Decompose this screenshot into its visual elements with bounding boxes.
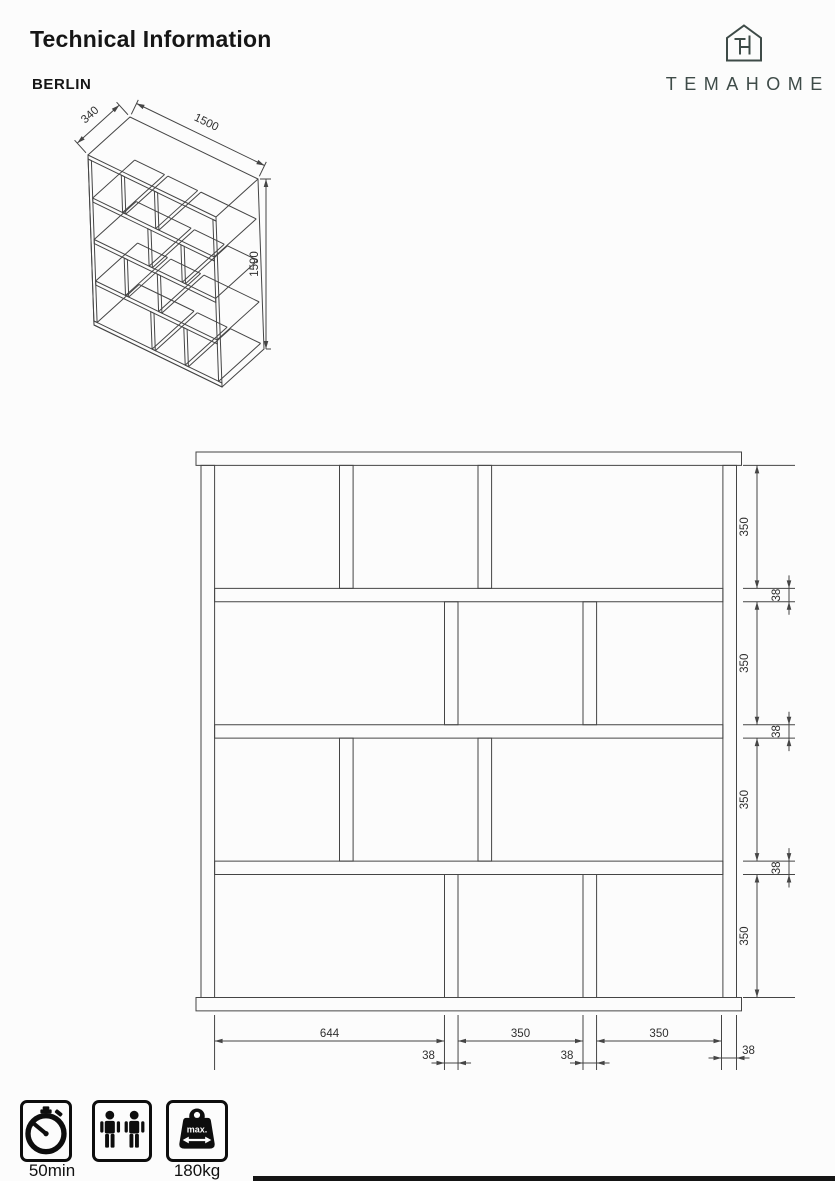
two-person-assembly-icon-box — [92, 1100, 152, 1162]
dim-label: 340 — [79, 104, 101, 126]
dim-label: 38 — [561, 1050, 574, 1062]
dim-label: 38 — [771, 589, 783, 602]
dim-label: 350 — [739, 790, 751, 809]
dim-label: 350 — [739, 926, 751, 945]
max-load-label: 180kg — [166, 1161, 228, 1181]
technical-sheet-page: Technical Information BERLIN TEMAHOME 34… — [0, 0, 835, 1181]
spec-icons-row: max. — [20, 1100, 228, 1162]
dim-label: 350 — [511, 1028, 530, 1040]
assembly-time-label: 50min — [22, 1161, 82, 1181]
dim-label: 38 — [771, 725, 783, 738]
isometric-view: 34015001590 — [75, 100, 271, 387]
dim-label: 1500 — [192, 112, 220, 134]
dim-label: 350 — [649, 1028, 668, 1040]
front-elevation: 350350350350383838644350350383838 — [196, 452, 795, 1070]
max-weight-icon-box: max. — [166, 1100, 228, 1162]
dim-label: 1590 — [249, 251, 261, 277]
dim-label: 38 — [422, 1050, 435, 1062]
technical-drawing: 34015001590 3503503503503838386443503503… — [0, 0, 835, 1181]
dim-label: 38 — [771, 861, 783, 874]
max-text: max. — [187, 1125, 208, 1135]
dim-label: 350 — [739, 517, 751, 536]
dim-label: 38 — [742, 1045, 755, 1057]
max-weight-icon: max. — [170, 1105, 224, 1157]
dim-label: 644 — [320, 1028, 340, 1040]
two-persons-icon — [96, 1105, 148, 1157]
stopwatch-icon — [24, 1105, 68, 1157]
dim-label: 350 — [739, 654, 751, 673]
page-edge-bar — [253, 1176, 835, 1181]
assembly-time-icon-box — [20, 1100, 72, 1162]
